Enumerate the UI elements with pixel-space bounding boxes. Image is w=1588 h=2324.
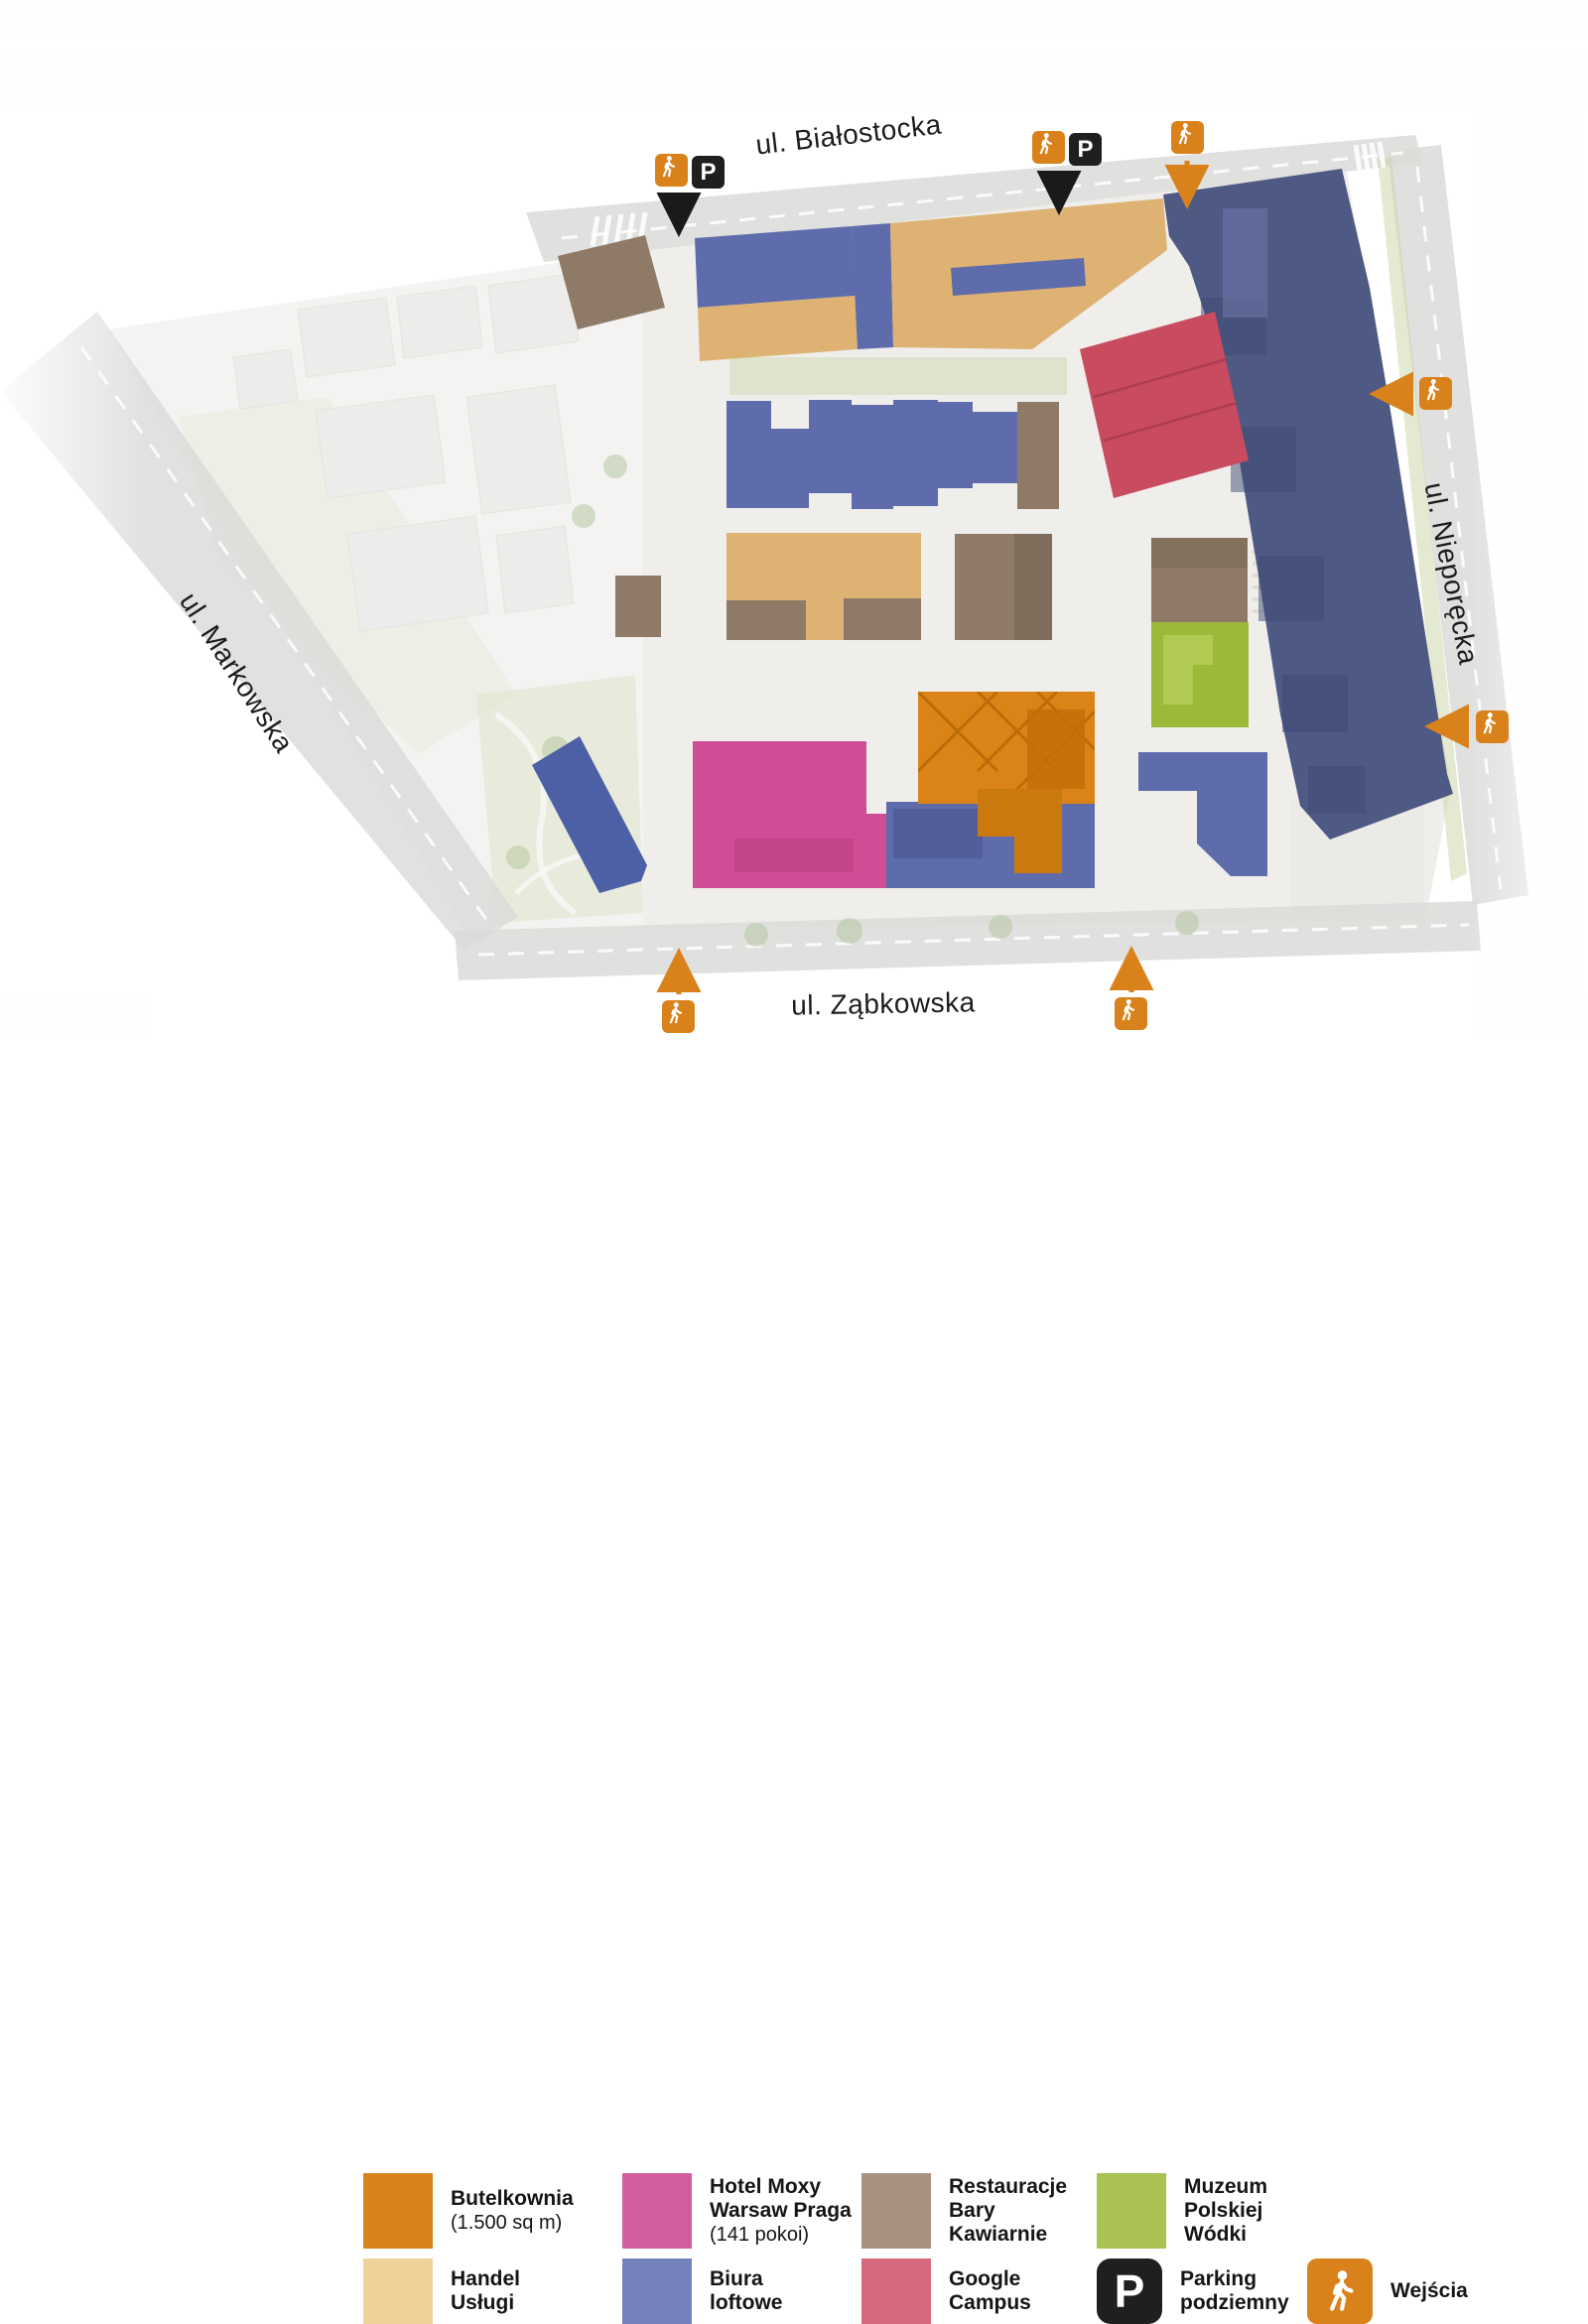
entrance-icon [655,154,688,187]
building-biura-north-left [695,226,856,308]
legend-swatch-biura [622,2259,692,2324]
legend: Butelkownia(1.500 sq m) Hotel MoxyWarsaw… [0,1062,1588,1264]
building-restaurant-central-row [1017,402,1059,509]
entrance-icon [1115,997,1147,1030]
street-label-zabkowska: ul. Ząbkowska [764,986,1003,1022]
building-biura-north-strip [852,223,893,349]
map-canvas [0,0,1588,1062]
legend-item-biura: Biuraloftowe [622,2259,783,2324]
legend-item-parking: P Parkingpodziemny [1097,2259,1289,2324]
entrance-icon [1476,710,1509,743]
legend-item-restauracje: RestauracjeBaryKawiarnie [861,2173,1067,2249]
parking-icon: P [1069,133,1102,166]
legend-item-wejscia: Wejścia [1307,2259,1468,2324]
entrance-icon [1171,121,1204,154]
site-plan: ul. Białostocka ul. Markowska ul. Niepor… [0,0,1588,1264]
entrance-icon [1419,377,1452,410]
parking-icon: P [1097,2259,1162,2324]
legend-item-handel: HandelUsługi [363,2259,520,2324]
entrance-icon [662,1000,695,1033]
legend-swatch-handel [363,2259,433,2324]
parking-icon: P [692,156,725,189]
legend-swatch-hotel-moxy [622,2173,692,2249]
building-restaurant-small [615,576,661,637]
entrance-icon [1307,2259,1373,2324]
legend-item-butelkownia: Butelkownia(1.500 sq m) [363,2173,574,2249]
legend-swatch-restauracje [861,2173,931,2249]
legend-swatch-google-campus [861,2259,931,2324]
map-area: ul. Białostocka ul. Markowska ul. Niepor… [0,0,1588,1062]
entrance-icon [1032,131,1065,164]
legend-item-google-campus: GoogleCampus [861,2259,1031,2324]
legend-item-muzeum: MuzeumPolskiejWódki [1097,2173,1267,2249]
legend-item-hotel-moxy: Hotel MoxyWarsaw Praga(141 pokoi) [622,2173,852,2249]
legend-swatch-muzeum [1097,2173,1166,2249]
legend-swatch-butelkownia [363,2173,433,2249]
